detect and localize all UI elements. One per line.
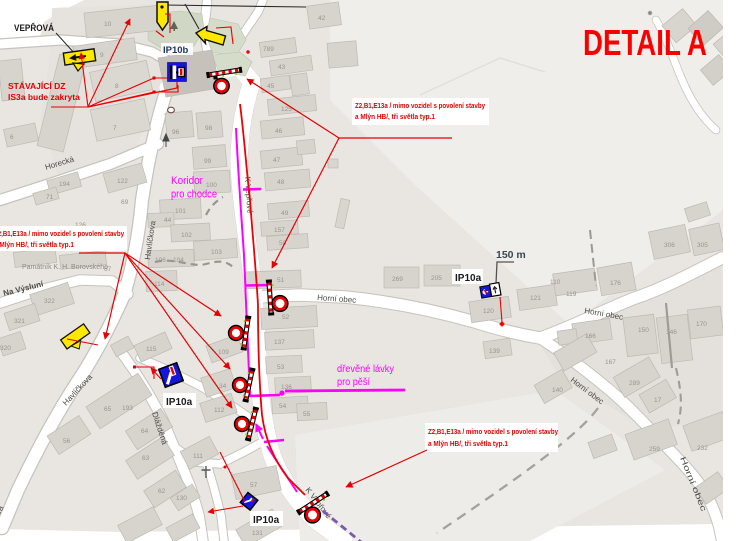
svg-text:71: 71 [46, 194, 54, 201]
svg-text:62: 62 [158, 488, 166, 495]
svg-text:69: 69 [121, 199, 129, 206]
svg-text:112: 112 [214, 407, 225, 414]
svg-text:IP10a: IP10a [455, 273, 482, 284]
svg-text:137: 137 [274, 339, 285, 346]
svg-text:IP10a: IP10a [253, 515, 280, 526]
svg-text:140: 140 [552, 387, 563, 394]
svg-text:194: 194 [59, 181, 70, 188]
svg-text:55: 55 [303, 411, 311, 418]
svg-text:44: 44 [164, 217, 172, 224]
svg-text:121: 121 [530, 295, 541, 302]
svg-text:9: 9 [100, 52, 104, 59]
svg-text:a Mlýn HB/, tři světla typ.1: a Mlýn HB/, tři světla typ.1 [355, 114, 435, 121]
svg-text:193: 193 [122, 405, 133, 412]
svg-text:176: 176 [610, 280, 621, 287]
svg-text:96: 96 [172, 129, 180, 136]
svg-text:IP10a: IP10a [166, 397, 193, 408]
svg-text:17: 17 [654, 397, 662, 404]
svg-text:65: 65 [104, 406, 112, 413]
svg-text:150 m: 150 m [496, 249, 526, 261]
svg-text:VEPŘOVÁ: VEPŘOVÁ [14, 22, 54, 33]
svg-text:IP10b: IP10b [163, 45, 189, 56]
svg-text:64: 64 [141, 428, 149, 435]
svg-text:34: 34 [219, 383, 227, 390]
svg-text:Z2,B1,E13a / mimo vozidel s po: Z2,B1,E13a / mimo vozidel s povolení sta… [0, 231, 124, 238]
svg-text:109: 109 [218, 349, 229, 356]
svg-text:139: 139 [489, 348, 500, 355]
svg-text:130: 130 [176, 495, 187, 502]
svg-text:110: 110 [550, 279, 561, 286]
svg-text:DETAIL A: DETAIL A [583, 22, 707, 63]
svg-text:789: 789 [263, 46, 274, 53]
svg-text:167: 167 [605, 359, 616, 366]
svg-text:a Mlýn HB/, tři světla typ.1: a Mlýn HB/, tři světla typ.1 [428, 441, 508, 448]
svg-text:7: 7 [113, 125, 117, 132]
svg-text:dřevěné lávky: dřevěné lávky [337, 363, 395, 375]
svg-text:157: 157 [274, 227, 285, 234]
svg-text:115: 115 [146, 346, 157, 353]
svg-text:259: 259 [649, 446, 660, 453]
svg-text:98: 98 [205, 125, 213, 132]
svg-text:119: 119 [566, 291, 577, 298]
svg-text:289: 289 [629, 380, 640, 387]
svg-text:306: 306 [664, 242, 675, 249]
svg-text:99: 99 [204, 158, 212, 165]
svg-text:Z2,B1,E13a / mimo vozidel s po: Z2,B1,E13a / mimo vozidel s povolení sta… [355, 103, 485, 110]
svg-text:322: 322 [44, 298, 55, 305]
svg-text:56: 56 [63, 438, 71, 445]
svg-text:49: 49 [281, 210, 289, 217]
svg-text:pro chodce: pro chodce [171, 189, 217, 201]
svg-text:101: 101 [175, 208, 186, 215]
svg-text:269: 269 [392, 276, 403, 283]
svg-text:57: 57 [250, 482, 258, 489]
svg-text:205: 205 [431, 275, 442, 282]
svg-text:53: 53 [277, 364, 285, 371]
svg-text:43: 43 [278, 64, 286, 71]
svg-text:320: 320 [0, 345, 11, 352]
svg-text:6: 6 [10, 134, 14, 141]
svg-text:102: 102 [181, 232, 192, 239]
svg-text:111: 111 [193, 453, 203, 460]
svg-text:63: 63 [142, 455, 150, 462]
svg-text:54: 54 [279, 403, 287, 410]
svg-text:321: 321 [14, 318, 25, 325]
svg-text:46: 46 [275, 128, 283, 135]
svg-text:305: 305 [697, 242, 708, 249]
svg-text:STÁVAJÍCÍ DZ: STÁVAJÍCÍ DZ [8, 81, 65, 91]
svg-text:131: 131 [252, 530, 263, 537]
svg-text:8: 8 [115, 83, 119, 90]
svg-text:IS3a bude zakryta: IS3a bude zakryta [8, 92, 80, 102]
svg-text:a Mlýn HB/, tři světla typ.1: a Mlýn HB/, tři světla typ.1 [0, 242, 74, 249]
svg-text:42: 42 [318, 15, 326, 22]
svg-text:170: 170 [696, 321, 707, 328]
svg-text:Koridor: Koridor [171, 175, 203, 187]
svg-text:150: 150 [638, 327, 649, 334]
svg-text:10: 10 [104, 21, 112, 28]
svg-text:48: 48 [277, 179, 285, 186]
svg-text:47: 47 [273, 157, 281, 164]
svg-text:166: 166 [585, 333, 596, 340]
svg-text:Z2,B1,E13a / mimo vozidel s po: Z2,B1,E13a / mimo vozidel s povolení sta… [428, 429, 558, 436]
svg-text:Památník K. H. Borovského: Památník K. H. Borovského [22, 264, 108, 271]
svg-text:103: 103 [211, 249, 222, 256]
svg-text:52: 52 [282, 314, 290, 321]
svg-text:232: 232 [697, 445, 708, 452]
svg-text:120: 120 [483, 308, 494, 315]
svg-text:45: 45 [267, 83, 275, 90]
svg-text:122: 122 [117, 178, 128, 185]
svg-text:pro pěší: pro pěší [337, 376, 370, 388]
svg-text:51: 51 [277, 277, 285, 284]
